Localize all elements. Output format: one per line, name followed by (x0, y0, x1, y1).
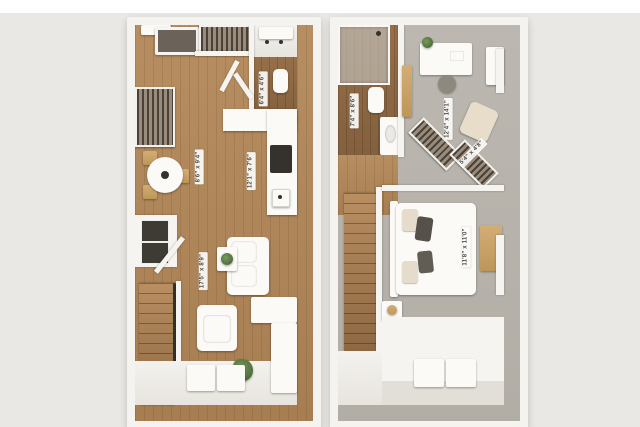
window-sill (496, 235, 504, 295)
wardrobe (408, 117, 462, 171)
kitchen-dim-label: 12'1" x 7'6" (247, 152, 256, 190)
chaise-chair (458, 100, 499, 143)
level1-interior: 6'4" x 4'6" 8'6" x 9'4" (135, 25, 313, 421)
stairs-down (344, 193, 376, 351)
ladder-shelf (402, 65, 412, 117)
skylight-panel (446, 359, 476, 387)
bathroom-dim-label: 7'4" x 8'6" (350, 94, 359, 129)
living-dim-label: 17'5" x 8'9" (199, 252, 208, 290)
plant (221, 253, 233, 265)
bedroom-dim-label: 11'8" x 11'0" (462, 226, 471, 267)
skylight-panel (414, 359, 444, 387)
armchair-seat (203, 315, 231, 343)
toilet (273, 69, 288, 93)
table-centerpiece (161, 171, 169, 179)
desk-chair (438, 75, 456, 93)
floor-plan-level-2: 7'4" x 8'6" 12'4" x 14'1" 5'4" x 4'8" (330, 17, 528, 427)
laptop (450, 51, 464, 61)
floorplan-screenshot: 6'4" x 4'6" 8'6" x 9'4" (0, 0, 640, 427)
console-side (271, 323, 297, 393)
desk-plant (422, 37, 433, 48)
toilet (368, 87, 384, 113)
door-mat (217, 365, 245, 391)
pillow (402, 261, 418, 283)
utility-dim-label: 6'4" x 4'6" (259, 72, 268, 107)
faucet-icon (279, 40, 283, 44)
door-mat (187, 365, 215, 391)
vanity-sink (385, 125, 396, 143)
accent-pillow (417, 250, 434, 273)
dining-dim-label: 8'6" x 9'4" (195, 150, 204, 185)
powder-room-wall (249, 25, 254, 121)
photo-background: 6'4" x 4'6" 8'6" x 9'4" (0, 13, 640, 427)
utility-counter (259, 27, 293, 39)
window-pane (141, 220, 169, 242)
level2-interior: 7'4" x 8'6" 12'4" x 14'1" 5'4" x 4'8" (338, 25, 520, 421)
bedroom-wall (382, 185, 504, 191)
bookshelf (135, 87, 175, 147)
closet-wall (195, 51, 251, 56)
window-sill (496, 49, 504, 93)
faucet-icon (265, 40, 269, 44)
open-area-left (338, 351, 382, 405)
shower (338, 25, 390, 85)
accent-pillow (414, 216, 433, 242)
shower-head-icon (376, 31, 381, 36)
loft-dim-label: 12'4" x 14'1" (444, 98, 453, 140)
lamp (387, 305, 397, 315)
stove (270, 145, 292, 173)
floor-plan-level-1: 6'4" x 4'6" 8'6" x 9'4" (127, 17, 321, 427)
console-top (251, 297, 297, 323)
sink-drain-icon (278, 195, 282, 199)
entry-rug (155, 27, 199, 55)
